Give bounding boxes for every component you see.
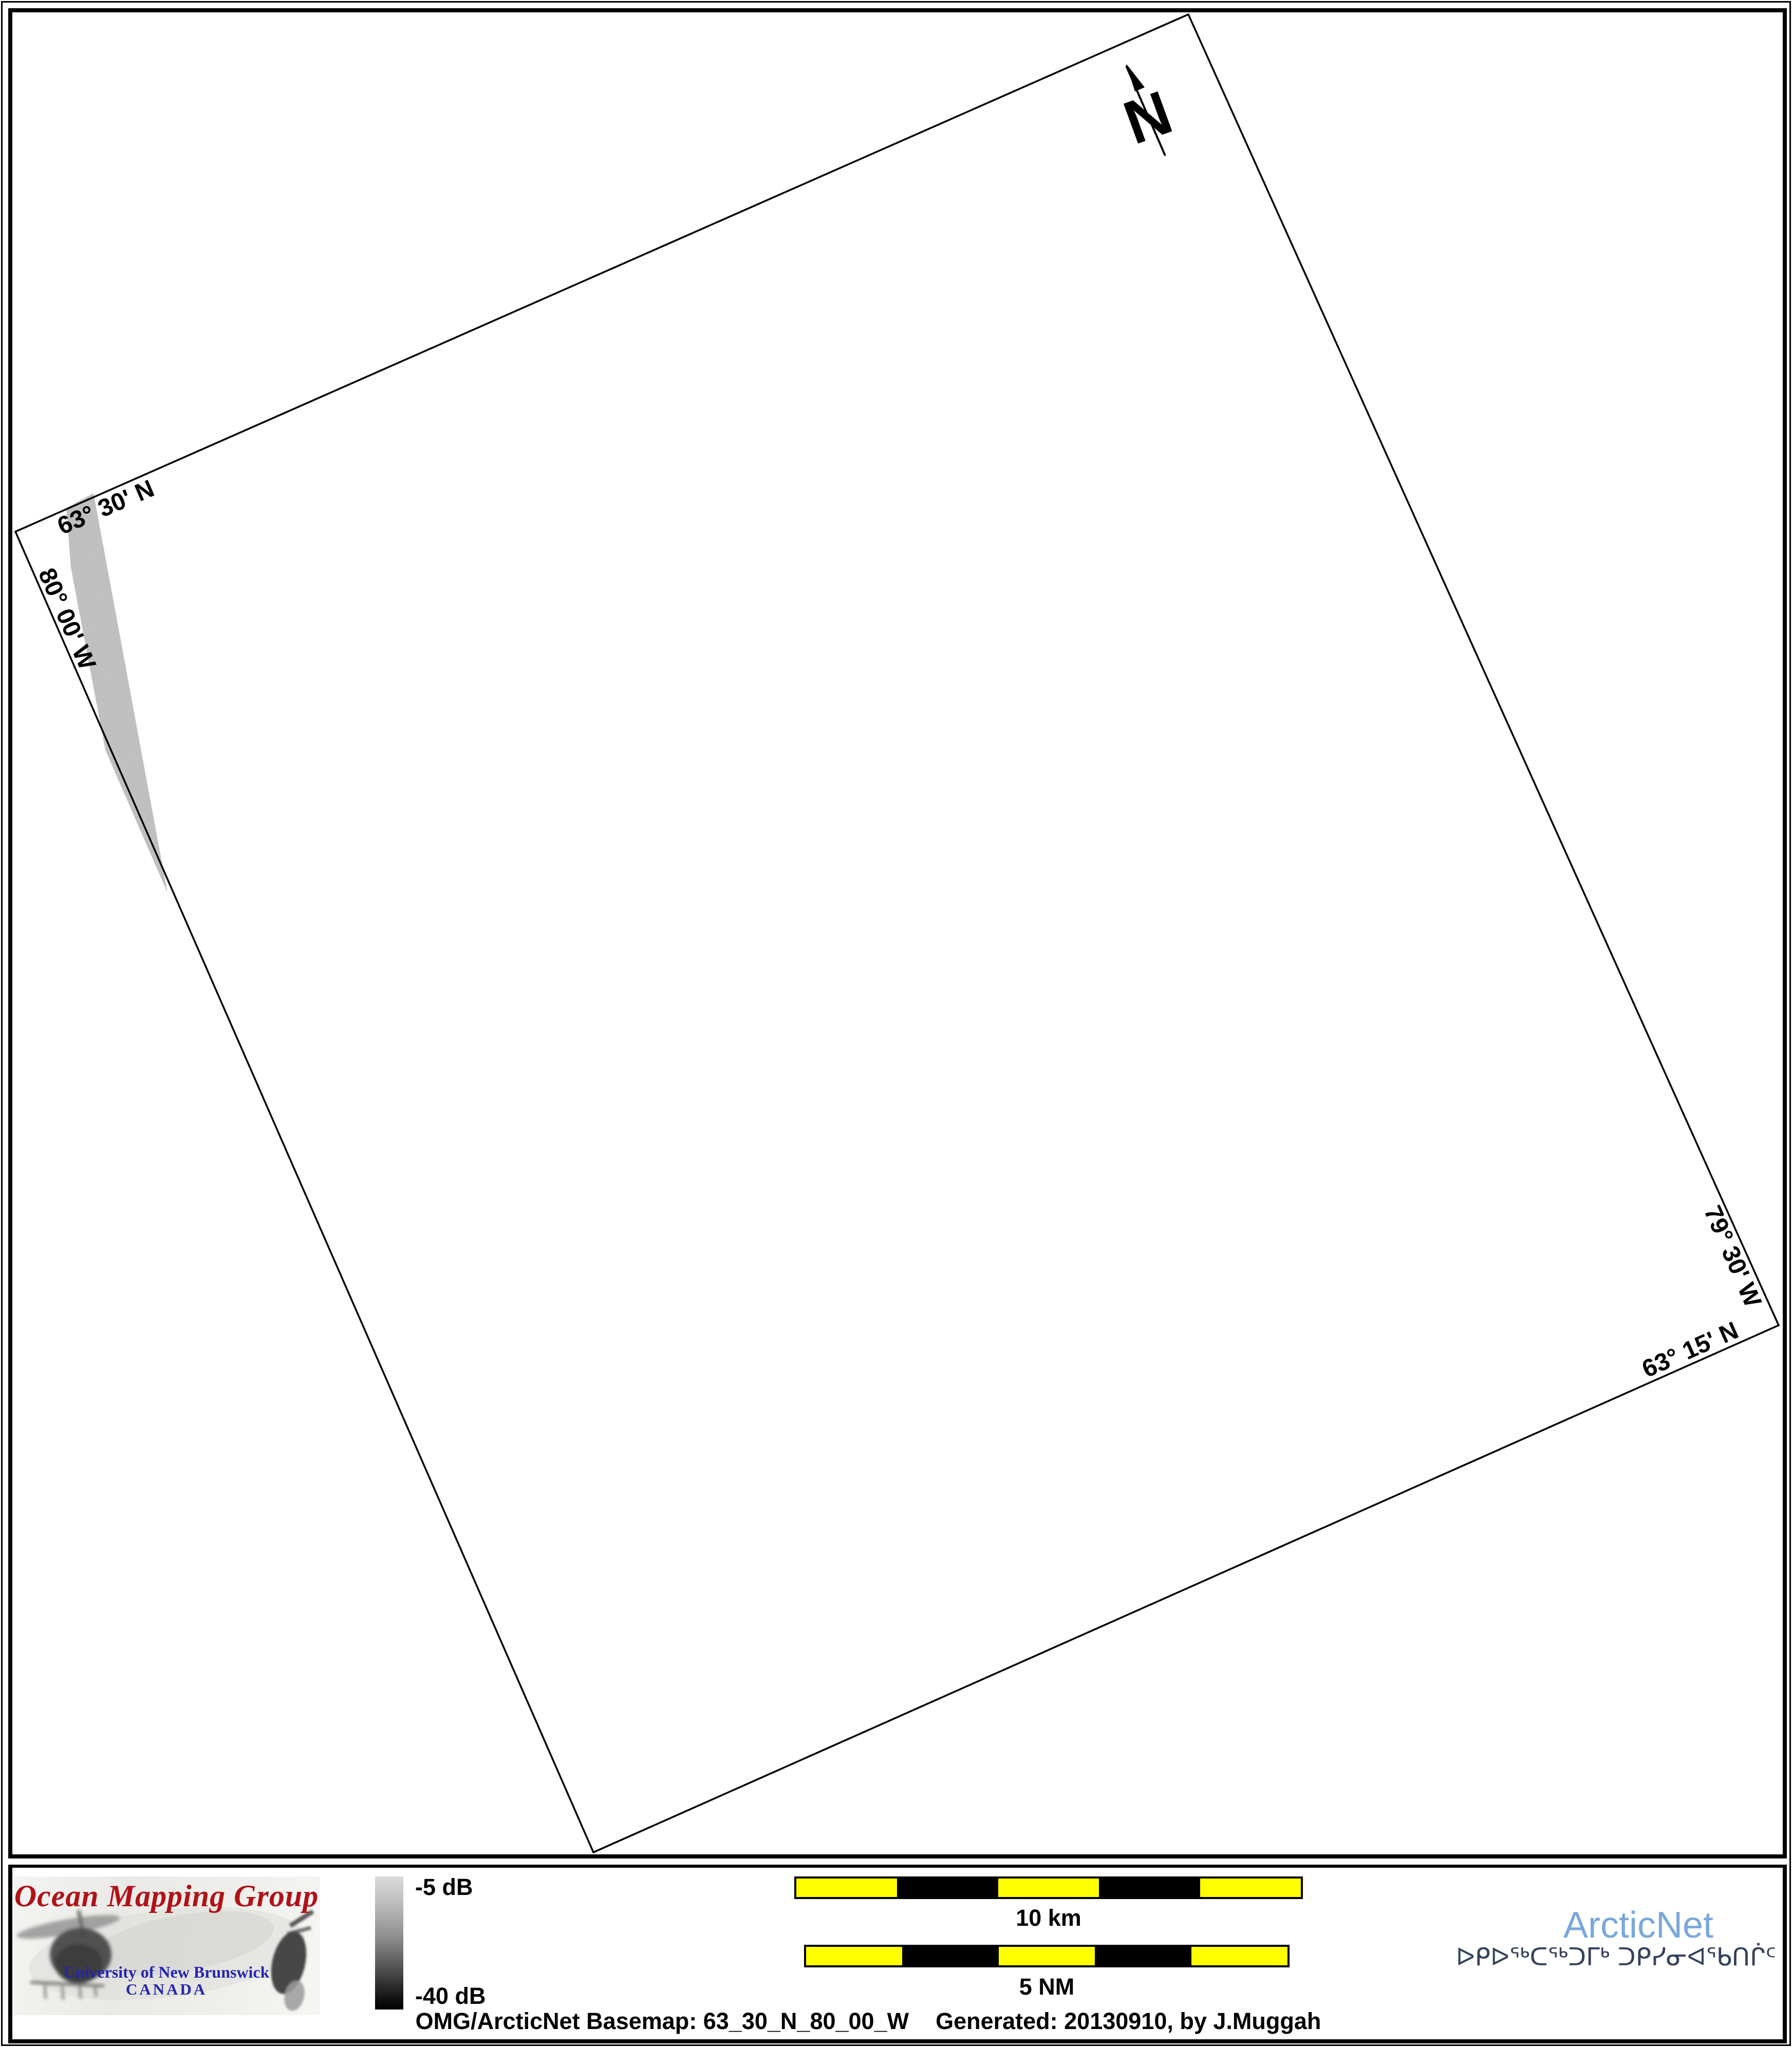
scalebar-segment (806, 1947, 902, 1965)
caption-generated: Generated: 20130910, by J.Muggah (936, 2008, 1321, 2034)
omg-logo-country: CANADA (13, 1980, 320, 1999)
caption-basemap: OMG/ArcticNet Basemap: 63_30_N_80_00_W (416, 2008, 909, 2034)
arcticnet-wordmark: ArcticNet (1563, 1907, 1713, 1944)
scalebar-segment (999, 1947, 1095, 1965)
scalebar-segment (902, 1947, 998, 1965)
scalebar-segment (1200, 1879, 1301, 1897)
scalebar-segment (998, 1879, 1099, 1897)
colorbar-max-label: -5 dB (415, 1874, 473, 1901)
colorbar-gradient (375, 1876, 403, 2010)
scalebar-segment (1191, 1947, 1287, 1965)
scalebar-5nm (804, 1945, 1290, 1967)
basemap-page: Ocean Mapping Group University of New Br… (0, 0, 1792, 2047)
scalebar-segment (796, 1879, 897, 1897)
omg-logo-institution: University of New Brunswick (13, 1963, 320, 1982)
scalebar-segment (897, 1879, 998, 1897)
scalebar-10km-label: 10 km (794, 1905, 1303, 1931)
scalebar-10km (794, 1876, 1303, 1899)
colorbar-min-label: -40 dB (415, 1983, 486, 2010)
scalebar-5nm-label: 5 NM (804, 1974, 1290, 2000)
map-caption: OMG/ArcticNet Basemap: 63_30_N_80_00_WGe… (12, 2008, 1724, 2034)
scalebar-segment (1099, 1879, 1200, 1897)
map-area (8, 8, 1787, 1858)
omg-logo: Ocean Mapping Group University of New Br… (13, 1876, 320, 2015)
arcticnet-inuktitut: ᐅᑭᐅᖅᑕᖅᑐᒥᒃ ᑐᑭᓯᓂᐊᖃᑎᒌᑦ (1456, 1945, 1776, 1969)
scalebar-segment (1095, 1947, 1191, 1965)
omg-logo-title: Ocean Mapping Group (13, 1879, 320, 1914)
legend-panel: Ocean Mapping Group University of New Br… (8, 1865, 1787, 2043)
